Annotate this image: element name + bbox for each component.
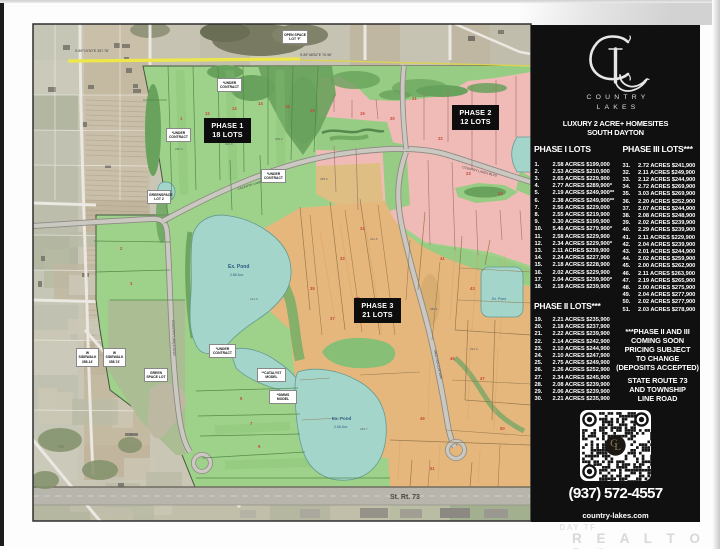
svg-text:L: L <box>614 441 621 453</box>
